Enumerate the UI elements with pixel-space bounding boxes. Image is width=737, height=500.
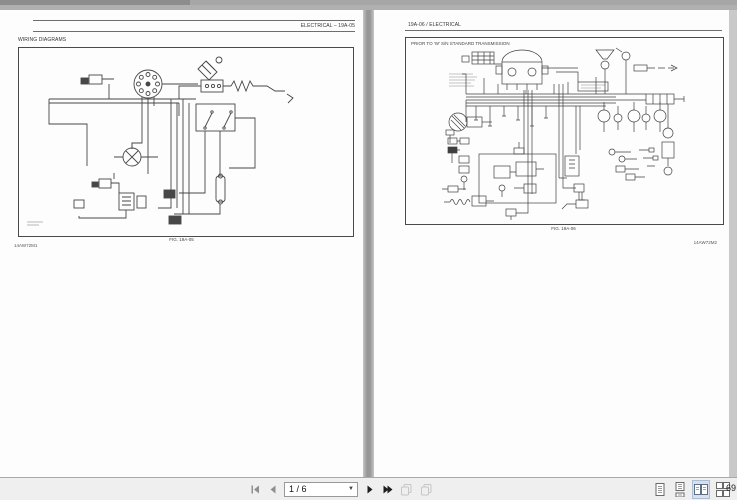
document-code: 14AW72M1 [14,243,37,248]
page-header-right: ELECTRICAL – 19A-05 [0,23,355,29]
left-diagram-frame [18,47,354,237]
scrollbar-track[interactable] [729,10,737,482]
go-first-icon [250,484,261,495]
document-page-right: 19A-06 / ELECTRICAL PRIOR TO 'W' S/N STA… [374,10,729,482]
go-next-icon [366,484,375,495]
page-duplicate-right-button[interactable] [420,483,433,496]
first-page-button[interactable] [250,484,261,495]
page-copy-icon [420,483,433,496]
right-wiring-diagram [406,38,723,224]
document-view-area: ELECTRICAL – 19A-05 WIRING DIAGRAMS [0,5,737,477]
facing-pages-view-button[interactable] [693,481,709,498]
page-header-left: 19A-06 / ELECTRICAL [408,22,461,28]
single-page-view-button[interactable] [653,481,667,498]
figure-caption: FIG. 19A-05 [0,237,363,242]
header-rule-top [33,20,355,21]
document-code: 14AW72M2 [374,240,717,245]
figure-caption: FIG. 19A-06 [405,226,722,231]
right-diagram-frame: PRIOR TO 'W' S/N STANDARD TRANSMISSION [405,37,724,225]
pdf-viewer-window: ELECTRICAL – 19A-05 WIRING DIAGRAMS [0,0,737,500]
chevron-down-icon[interactable]: ▼ [348,486,357,492]
next-page-button[interactable] [366,484,375,495]
page-view-mode-group [653,478,737,500]
diagram-title: PRIOR TO 'W' S/N STANDARD TRANSMISSION [411,41,510,46]
last-page-button[interactable] [382,484,393,495]
page-gap [363,10,374,482]
header-rule-bottom [33,31,355,32]
previous-page-button[interactable] [268,484,277,495]
left-wiring-diagram [19,48,353,236]
go-previous-icon [268,484,277,495]
page-number-combo[interactable]: ▼ [284,482,358,497]
continuous-view-button[interactable] [673,481,687,498]
zoom-level-label[interactable]: 69 [726,483,736,493]
page-number-input[interactable] [285,484,348,495]
continuous-page-icon [674,482,686,497]
page-duplicate-left-button[interactable] [400,483,413,496]
page-navigation-group: ▼ [250,478,440,500]
document-page-left: ELECTRICAL – 19A-05 WIRING DIAGRAMS [0,10,363,482]
single-page-icon [654,482,666,497]
go-last-icon [382,484,393,495]
facing-pages-icon [694,482,708,497]
section-title: WIRING DIAGRAMS [18,37,66,43]
navigation-toolbar: ▼ [0,477,737,500]
header-rule [405,30,722,31]
page-copy-icon [400,483,413,496]
